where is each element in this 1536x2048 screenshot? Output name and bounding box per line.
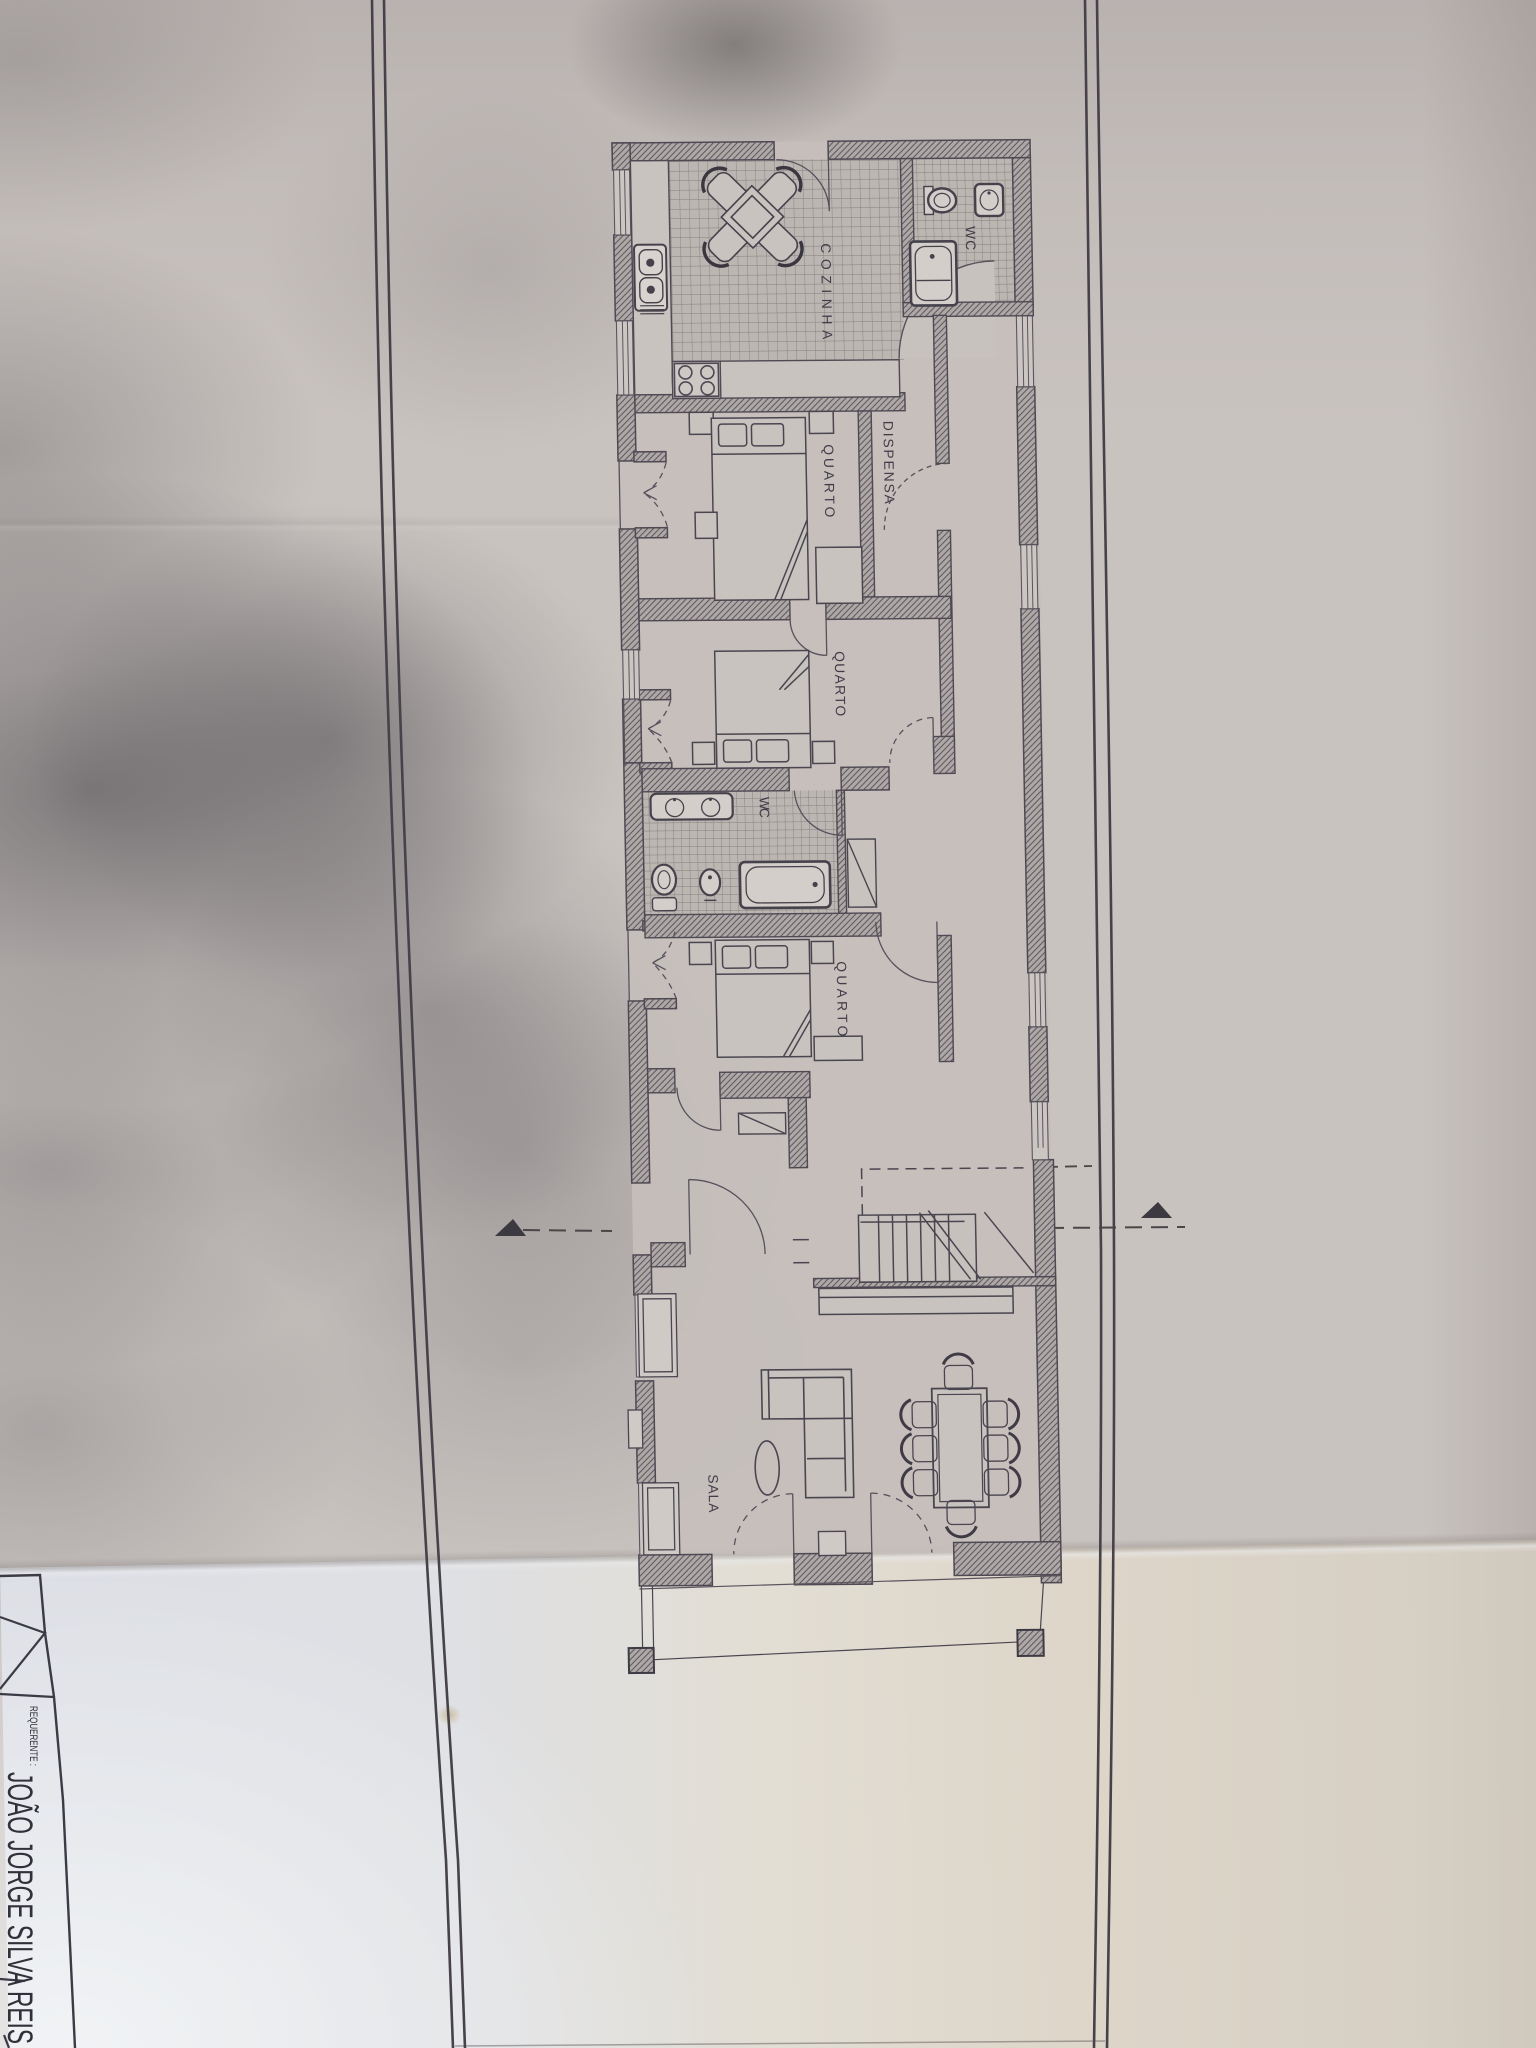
svg-text:QUARTO: QUARTO — [832, 651, 848, 718]
svg-text:REQUERENTE :: REQUERENTE : — [27, 1706, 39, 1766]
svg-text:WC: WC — [756, 797, 771, 820]
svg-text:WC: WC — [963, 226, 978, 252]
svg-text:DISPENSA: DISPENSA — [880, 421, 897, 506]
svg-text:SALA: SALA — [705, 1474, 721, 1514]
svg-text:JOÃO JORGE SILVA REIS: JOÃO JORGE SILVA REIS — [0, 1772, 39, 2044]
svg-text:QUARTO: QUARTO — [821, 444, 837, 519]
